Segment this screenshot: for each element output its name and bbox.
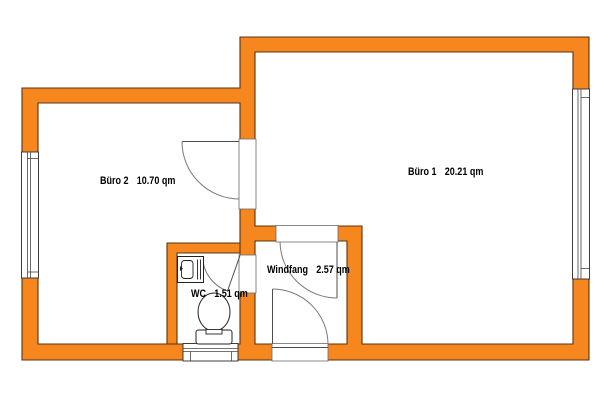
window-left [22, 152, 39, 278]
room-area: 2.57 qm [316, 264, 350, 276]
window-wc [183, 344, 238, 362]
floor-plan-drawing [0, 0, 609, 420]
room-name: Büro 2 [100, 175, 129, 187]
room-area: 1.51 qm [214, 288, 248, 300]
room-label-buero1: Büro 120.21 qm [408, 166, 483, 178]
sink-icon [178, 257, 204, 283]
room-area: 20.21 qm [445, 166, 484, 178]
room-name: Windfang [267, 264, 308, 276]
floor-plan: Büro 210.70 qm Büro 120.21 qm Windfang2.… [0, 0, 609, 420]
room-label-wc: WC1.51 qm [191, 288, 248, 300]
room-area: 10.70 qm [137, 175, 176, 187]
room-name: Büro 1 [408, 166, 437, 178]
room-label-windfang: Windfang2.57 qm [267, 264, 350, 276]
room-name: WC [191, 288, 206, 300]
toilet-icon [196, 293, 232, 344]
room-label-buero2: Büro 210.70 qm [100, 175, 175, 187]
window-right [573, 89, 590, 279]
